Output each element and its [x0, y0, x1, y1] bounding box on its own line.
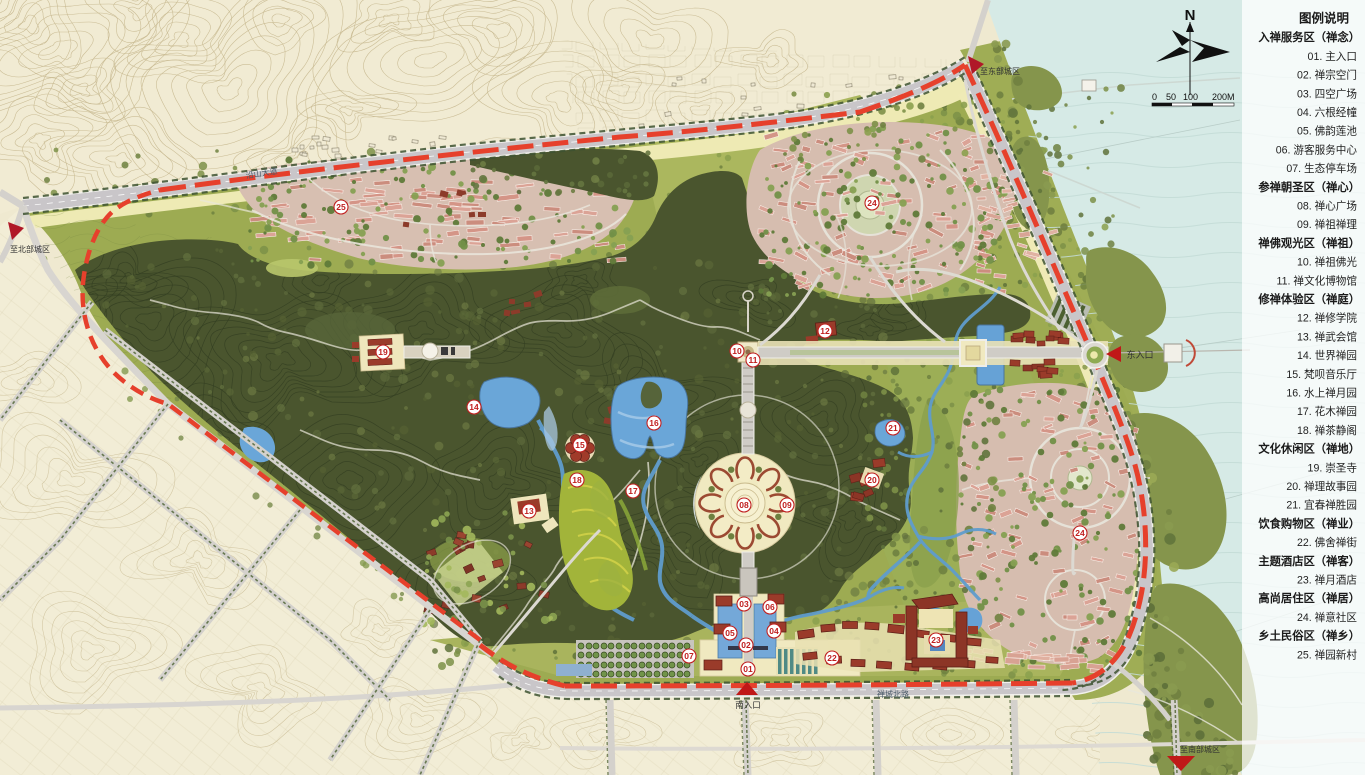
- svg-text:09. 禅祖禅理: 09. 禅祖禅理: [1297, 218, 1357, 231]
- svg-text:饮食购物区（禅业）: 饮食购物区（禅业）: [1257, 516, 1360, 530]
- svg-text:东入口: 东入口: [1126, 349, 1153, 360]
- svg-text:图例说明: 图例说明: [1299, 11, 1349, 26]
- svg-text:14. 世界禅园: 14. 世界禅园: [1297, 349, 1357, 362]
- svg-text:13: 13: [524, 506, 534, 516]
- svg-text:23: 23: [931, 635, 941, 645]
- svg-text:01. 主入口: 01. 主入口: [1308, 51, 1357, 63]
- svg-text:南入口: 南入口: [735, 700, 761, 710]
- svg-text:02. 禅宗空门: 02. 禅宗空门: [1297, 69, 1357, 82]
- svg-text:19: 19: [378, 347, 388, 357]
- svg-text:18. 禅茶静阁: 18. 禅茶静阁: [1297, 424, 1357, 437]
- svg-text:主题酒店区（禅客）: 主题酒店区（禅客）: [1258, 554, 1360, 568]
- svg-text:19. 崇圣寺: 19. 崇圣寺: [1308, 462, 1358, 474]
- svg-text:至北部城区: 至北部城区: [10, 244, 50, 254]
- svg-text:02: 02: [741, 640, 751, 650]
- svg-text:24. 禅意社区: 24. 禅意社区: [1297, 611, 1357, 624]
- svg-text:16. 水上禅月园: 16. 水上禅月园: [1286, 387, 1357, 400]
- svg-text:20: 20: [867, 475, 877, 485]
- svg-text:18: 18: [572, 475, 582, 485]
- svg-text:25. 禅园新村: 25. 禅园新村: [1297, 648, 1357, 661]
- svg-text:20. 禅理故事园: 20. 禅理故事园: [1286, 480, 1357, 493]
- svg-text:参禅朝圣区（禅心）: 参禅朝圣区（禅心）: [1258, 180, 1360, 194]
- svg-text:08: 08: [739, 500, 749, 510]
- svg-text:09: 09: [782, 500, 792, 510]
- svg-text:200M: 200M: [1212, 92, 1235, 102]
- svg-text:07. 生态停车场: 07. 生态停车场: [1286, 162, 1357, 175]
- svg-text:12. 禅修学院: 12. 禅修学院: [1297, 312, 1357, 325]
- svg-text:10: 10: [732, 346, 742, 356]
- svg-text:11. 禅文化博物馆: 11. 禅文化博物馆: [1277, 274, 1357, 287]
- svg-text:06: 06: [765, 602, 775, 612]
- svg-text:04: 04: [769, 626, 779, 636]
- svg-text:24: 24: [1075, 528, 1085, 538]
- svg-text:N: N: [1185, 7, 1196, 24]
- svg-text:01: 01: [743, 664, 753, 674]
- svg-text:03. 四空广场: 03. 四空广场: [1297, 87, 1357, 100]
- svg-text:03: 03: [739, 599, 749, 609]
- svg-text:12: 12: [820, 326, 830, 336]
- svg-text:14: 14: [469, 402, 479, 412]
- svg-text:25: 25: [336, 202, 346, 212]
- svg-text:07: 07: [684, 651, 694, 661]
- svg-text:15. 梵呗音乐厅: 15. 梵呗音乐厅: [1286, 368, 1357, 381]
- svg-text:修禅体验区（禅庭）: 修禅体验区（禅庭）: [1257, 292, 1360, 306]
- svg-text:05. 佛韵莲池: 05. 佛韵莲池: [1297, 125, 1357, 138]
- svg-text:16: 16: [649, 418, 659, 428]
- svg-text:乡土民俗区（禅乡）: 乡土民俗区（禅乡）: [1258, 629, 1360, 643]
- svg-text:17. 花木禅园: 17. 花木禅园: [1297, 405, 1357, 418]
- svg-text:04. 六根经幢: 04. 六根经幢: [1297, 106, 1357, 119]
- svg-text:至南部城区: 至南部城区: [1180, 744, 1220, 754]
- svg-text:17: 17: [628, 486, 638, 496]
- svg-text:22. 佛舍禅街: 22. 佛舍禅街: [1297, 536, 1357, 549]
- svg-text:13. 禅武会馆: 13. 禅武会馆: [1297, 330, 1357, 343]
- svg-text:05: 05: [725, 628, 735, 638]
- svg-text:文化休闲区（禅地）: 文化休闲区（禅地）: [1258, 442, 1360, 456]
- svg-text:23. 禅月酒店: 23. 禅月酒店: [1297, 574, 1357, 587]
- svg-text:0: 0: [1152, 92, 1157, 102]
- svg-text:入禅服务区（禅念）: 入禅服务区（禅念）: [1257, 30, 1360, 44]
- svg-text:至东部城区: 至东部城区: [980, 66, 1020, 76]
- svg-text:10. 禅祖佛光: 10. 禅祖佛光: [1297, 256, 1357, 269]
- svg-text:禅城北路: 禅城北路: [877, 689, 909, 699]
- svg-text:08. 禅心广场: 08. 禅心广场: [1297, 200, 1357, 213]
- svg-text:22: 22: [827, 653, 837, 663]
- svg-text:11: 11: [749, 355, 758, 365]
- svg-text:50: 50: [1166, 92, 1176, 102]
- svg-text:禅佛观光区（禅祖）: 禅佛观光区（禅祖）: [1257, 236, 1360, 250]
- svg-text:21: 21: [888, 423, 898, 433]
- svg-text:24: 24: [867, 198, 877, 208]
- svg-text:06. 游客服务中心: 06. 游客服务中心: [1276, 143, 1358, 156]
- svg-text:高尚居住区（禅居）: 高尚居住区（禅居）: [1258, 591, 1360, 605]
- svg-text:15: 15: [575, 440, 585, 450]
- svg-text:21. 宜春禅胜园: 21. 宜春禅胜园: [1286, 499, 1357, 512]
- svg-text:100: 100: [1183, 92, 1198, 102]
